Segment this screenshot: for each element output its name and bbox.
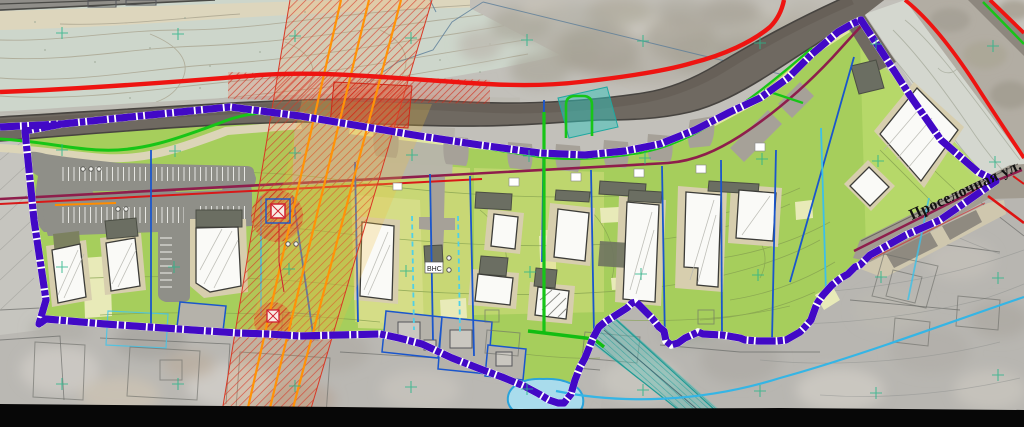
svg-text:ВНС: ВНС bbox=[427, 266, 442, 273]
